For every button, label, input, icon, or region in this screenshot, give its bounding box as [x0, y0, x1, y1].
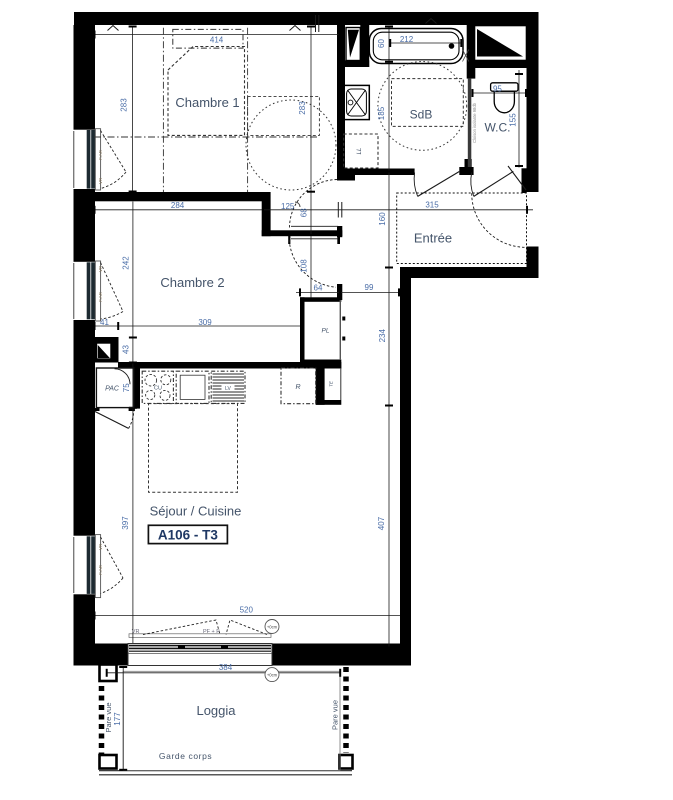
svg-text:A106 - T3: A106 - T3	[158, 528, 219, 543]
svg-text:283: 283	[298, 101, 307, 115]
svg-text:414: 414	[210, 36, 224, 45]
svg-text:75: 75	[122, 383, 131, 392]
svg-text:+0cm: +0cm	[267, 625, 278, 630]
svg-text:PAC: PAC	[105, 386, 120, 393]
svg-text:43: 43	[122, 345, 131, 354]
svg-text:Pare vue: Pare vue	[104, 702, 113, 732]
svg-text:177: 177	[113, 712, 122, 726]
svg-text:155: 155	[509, 113, 518, 127]
svg-text:407: 407	[377, 516, 386, 530]
svg-text:VR: VR	[98, 177, 103, 184]
svg-text:F.AR: F.AR	[98, 149, 103, 160]
svg-text:TE: TE	[329, 380, 334, 387]
svg-text:41: 41	[100, 318, 109, 327]
svg-text:Garde corps: Garde corps	[159, 751, 212, 761]
svg-text:Entrée: Entrée	[414, 231, 452, 246]
svg-text:64: 64	[314, 284, 323, 293]
svg-text:99: 99	[365, 283, 374, 292]
svg-text:Cloison isolante 98db: Cloison isolante 98db	[472, 102, 477, 143]
svg-text:68: 68	[300, 208, 309, 217]
svg-text:60: 60	[377, 39, 386, 48]
svg-text:Loggia: Loggia	[196, 703, 236, 718]
svg-text:283: 283	[120, 98, 129, 112]
svg-text:212: 212	[400, 35, 414, 44]
svg-text:Chambre 2: Chambre 2	[160, 275, 224, 290]
svg-text:VR: VR	[98, 265, 103, 272]
svg-text:284: 284	[171, 201, 185, 210]
svg-text:LL: LL	[357, 148, 363, 155]
svg-text:F.AR: F.AR	[98, 291, 103, 302]
svg-text:PL: PL	[322, 328, 330, 335]
svg-text:Pare vue: Pare vue	[330, 700, 339, 730]
svg-text:95: 95	[493, 85, 502, 94]
svg-text:W.C.: W.C.	[485, 121, 511, 135]
svg-text:160: 160	[378, 212, 387, 226]
svg-text:384: 384	[219, 663, 233, 672]
svg-text:315: 315	[425, 201, 439, 210]
svg-text:SdB: SdB	[410, 108, 433, 122]
svg-text:PF + F: PF + F	[203, 629, 220, 635]
svg-text:185: 185	[377, 106, 386, 120]
svg-text:108: 108	[300, 259, 309, 273]
svg-text:242: 242	[122, 256, 131, 270]
svg-text:F.AR: F.AR	[98, 564, 103, 575]
svg-text:309: 309	[198, 318, 212, 327]
svg-text:R: R	[295, 384, 300, 391]
svg-text:VR: VR	[132, 629, 140, 635]
svg-text:Chambre 1: Chambre 1	[175, 95, 239, 110]
svg-text:Séjour / Cuisine: Séjour / Cuisine	[150, 504, 242, 519]
svg-text:397: 397	[121, 516, 130, 530]
svg-text:+0cm: +0cm	[267, 673, 278, 678]
svg-text:LV: LV	[225, 386, 231, 392]
svg-text:CU: CU	[154, 386, 162, 392]
svg-text:125: 125	[281, 202, 295, 211]
svg-text:234: 234	[378, 328, 387, 342]
svg-text:520: 520	[240, 606, 254, 615]
svg-text:VR: VR	[98, 543, 103, 550]
